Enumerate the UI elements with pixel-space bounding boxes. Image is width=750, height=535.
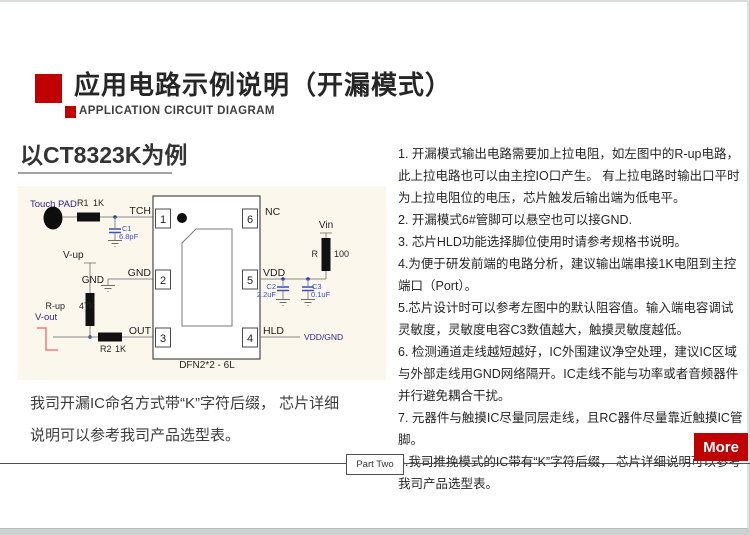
pin2-number: 2 (160, 275, 166, 287)
note-item: 4.为便于研发前端的电路分析，建议输出端串接1K电阻到主控端口（Port）。 (398, 253, 743, 297)
v-out-label: V-out (35, 312, 58, 323)
ground-symbol (108, 241, 122, 247)
r2-ref-label: R2 (100, 344, 112, 354)
vdd-gnd-label: VDD/GND (304, 332, 343, 342)
touch-pad-electrode (44, 207, 63, 230)
pin2-name: GND (128, 267, 152, 279)
part-two-badge: Part Two (346, 454, 404, 475)
example-heading: 以CT8323K为例 (20, 136, 187, 170)
falling-edge-waveform (37, 328, 58, 350)
pin1-name: TCH (129, 205, 151, 217)
ground-symbol (301, 300, 315, 306)
page-title: 应用电路示例说明（开漏模式） (74, 65, 452, 102)
pin4-name: HLD (263, 325, 284, 337)
pin1-number: 1 (160, 214, 166, 226)
note-item: 6. 检测通道走线越短越好，IC外围建议净空处理，建议IC区域与外部走线用GND… (398, 341, 743, 407)
resistor-r2 (98, 333, 122, 342)
ground-symbol (101, 286, 115, 292)
gnd-label: GND (82, 275, 104, 286)
note-item: 5.芯片设计时可以参考左图中的默认阻容值。输入端电容调试灵敏度，灵敏度电容C3数… (398, 297, 743, 341)
ground-symbol (276, 300, 290, 306)
c1-value-label: 6.8pF (119, 232, 139, 241)
c2-value-label: 2.2uF (257, 290, 277, 299)
resistor-r1 (77, 213, 100, 222)
capacitor-c2 (277, 287, 289, 291)
note-item: 1. 开漏模式输出电路需要加上拉电阻，如左图中的R-up电路，此上拉电路也可以由… (398, 143, 743, 209)
r2-value-label: 1K (115, 344, 126, 354)
pin3-name: OUT (129, 325, 152, 337)
r1-value-label: 1K (93, 198, 104, 208)
pin6-number: 6 (247, 214, 253, 226)
circuit-diagram-panel: Touch PAD R1 1K C1 6.8pF V-up R-up 47K (18, 186, 386, 380)
pin5-number: 5 (247, 275, 253, 287)
note-item: 2. 开漏模式6#管脚可以悬空也可以接GND. (398, 209, 743, 231)
c3-value-label: 0.1uF (311, 290, 331, 299)
r-up-ref-label: R-up (45, 301, 65, 311)
wire (108, 279, 155, 285)
heading-underline (18, 172, 172, 174)
document-page: 应用电路示例说明（开漏模式） APPLICATION CIRCUIT DIAGR… (0, 0, 749, 529)
note-item: 8.我司推挽模式的IC带有“K”字符后缀， 芯片详细说明可以参考我司产品选型表。 (398, 451, 743, 495)
pin4-number: 4 (247, 333, 253, 345)
resistor-r-series (322, 238, 331, 271)
header-red-square (35, 74, 62, 103)
r1-ref-label: R1 (77, 198, 89, 208)
pin3-number: 3 (160, 333, 166, 345)
vin-label: Vin (319, 220, 333, 231)
application-notes: 1. 开漏模式输出电路需要加上拉电阻，如左图中的R-up电路，此上拉电路也可以由… (398, 143, 743, 495)
pin5-name: VDD (263, 267, 286, 279)
circuit-caption-line2: 说明可以参考我司产品选型表。 (30, 424, 380, 445)
page-subtitle: APPLICATION CIRCUIT DIAGRAM (79, 105, 275, 117)
pin1-marker-dot (177, 213, 187, 223)
v-up-label: V-up (63, 250, 84, 261)
pin6-name: NC (265, 206, 281, 218)
wire (320, 233, 332, 238)
subtitle-red-square (65, 106, 76, 118)
note-item: 7. 元器件与触摸IC尽量同层走线，且RC器件尽量靠近触摸IC管脚。 (398, 407, 743, 451)
r-series-value-label: 100 (334, 249, 349, 259)
more-button[interactable]: More (694, 433, 748, 461)
r-up-value-label: 47K (79, 301, 95, 311)
r-series-ref-label: R (312, 249, 319, 259)
note-item: 3. 芯片HLD功能选择脚位使用时请参考规格书说明。 (398, 231, 743, 253)
circuit-diagram: Touch PAD R1 1K C1 6.8pF V-up R-up 47K (18, 186, 386, 379)
circuit-caption-line1: 我司开漏IC命名方式带“K”字符后缀， 芯片详细 (30, 392, 380, 413)
package-label: DFN2*2 - 6L (179, 360, 235, 371)
